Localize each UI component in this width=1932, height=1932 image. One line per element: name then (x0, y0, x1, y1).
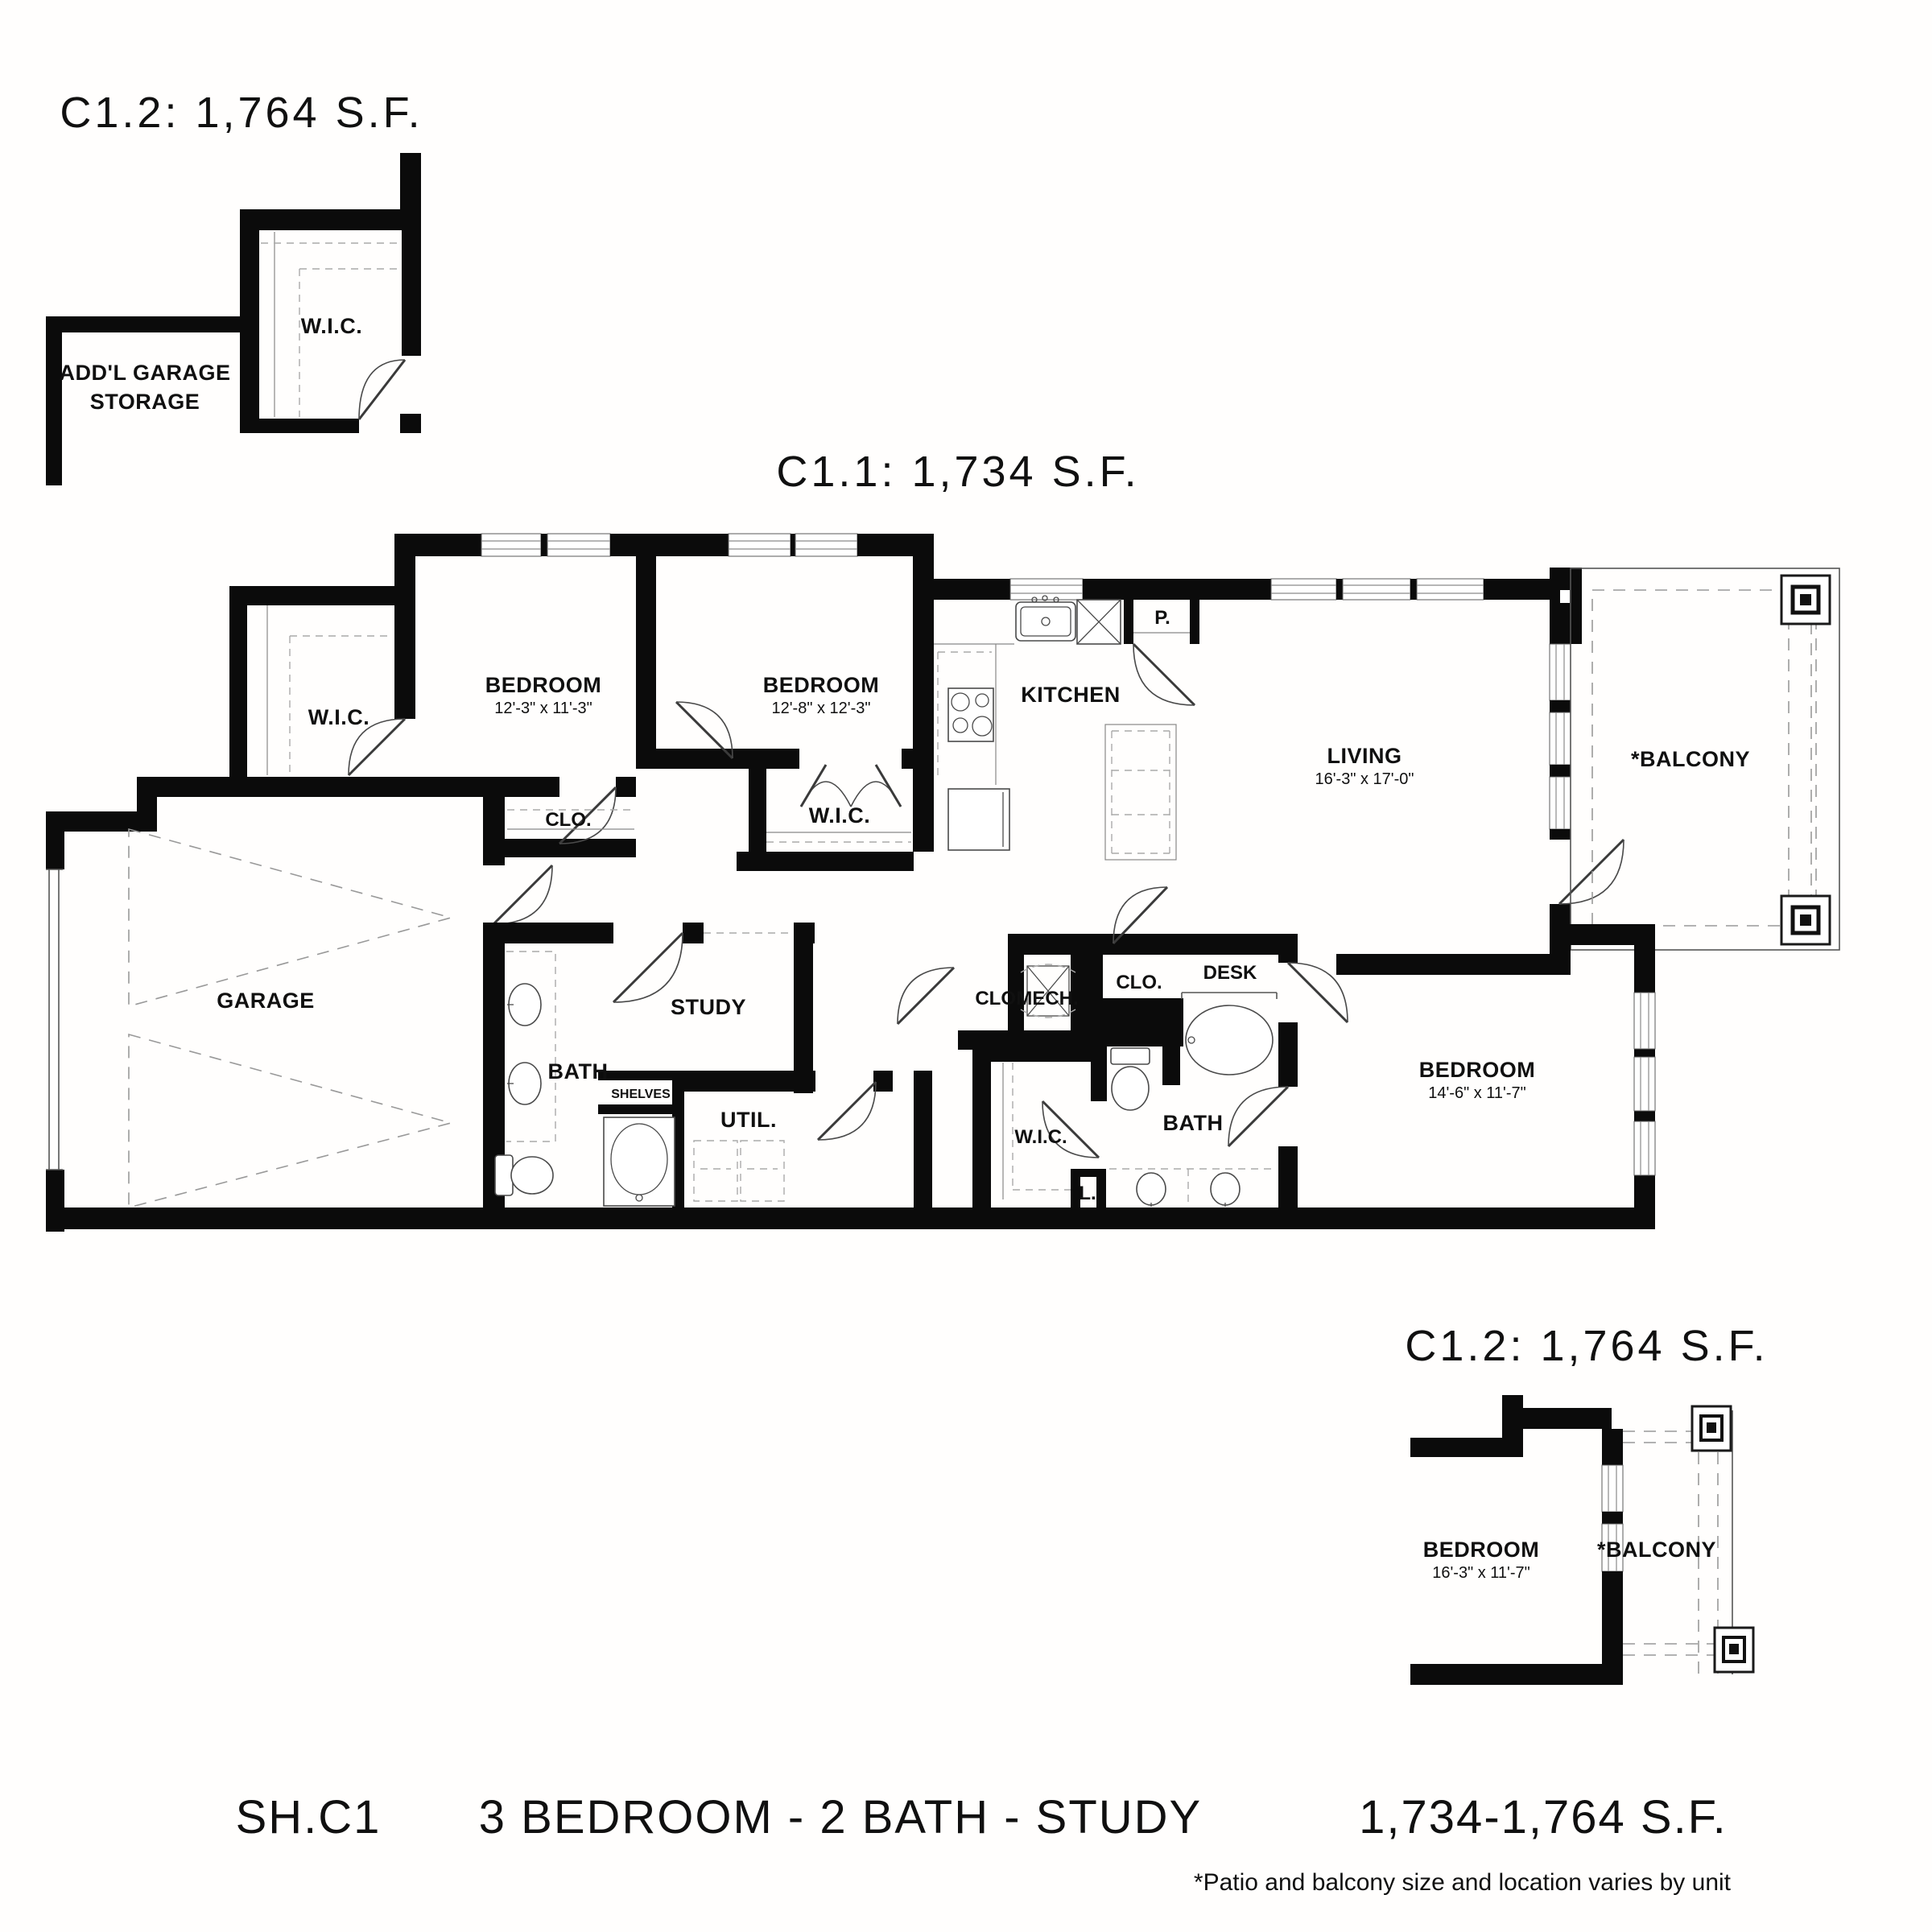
room-dims-bedroom2: 12'-8" x 12'-3" (771, 700, 870, 717)
room-label-bath1: BATH (548, 1059, 609, 1084)
balcony-post-bottom (1781, 896, 1830, 944)
room-dims-bedroom3: 14'-6" x 11'-7" (1428, 1084, 1526, 1102)
footer: SH.C1 3 BEDROOM - 2 BATH - STUDY 1,734-1… (236, 1791, 1732, 1896)
closet2-door-arc (898, 968, 954, 1024)
washer-dryer (694, 1141, 784, 1201)
room-label-mech: MECH. (1016, 988, 1078, 1009)
wic2-double-doors (801, 765, 901, 807)
kitchen-island (1105, 724, 1176, 860)
bath1-door-arc (613, 933, 683, 1002)
room-label-garage: GARAGE (217, 989, 315, 1013)
inset-balcony-post-bottom (1715, 1628, 1753, 1672)
garage-door-swing-triangles (129, 829, 451, 1207)
master-toilet (1111, 1048, 1150, 1110)
wic2-closet-lines (766, 832, 911, 842)
room-label-inset-balcony: *BALCONY (1597, 1538, 1716, 1562)
variant-title-top: C1.2: 1,764 S.F. (60, 89, 423, 137)
master-suite-walls (958, 924, 1655, 1228)
balcony-door-arc (1559, 840, 1624, 904)
exterior-wall-north-kitchen-living (913, 534, 1582, 852)
label-addl-garage-storage: ADD'L GARAGE (60, 361, 231, 385)
room-label-closet2: CLO. (975, 988, 1021, 1009)
room-label-utility: UTIL. (720, 1108, 777, 1132)
bath1-tub (604, 1117, 675, 1206)
inset-balcony-post-top (1692, 1406, 1731, 1451)
room-dims-bedroom1: 12'-3" x 11'-3" (494, 700, 592, 717)
room-label-inset-bedroom: BEDROOM (1423, 1538, 1540, 1562)
room-label-closet3: CLO. (1116, 972, 1162, 993)
wall-bed1-wic (394, 556, 415, 719)
room-label-bedroom3: BEDROOM (1419, 1058, 1536, 1082)
variant-title-bottom: C1.2: 1,764 S.F. (1405, 1322, 1768, 1370)
floorplan-drawing: C1.2: 1,764 S.F. ADD'L GARAGE STORAGE W.… (0, 0, 1932, 1932)
plan-description: 3 BEDROOM - 2 BATH - STUDY (479, 1791, 1202, 1843)
exterior-wall-north-bedrooms (394, 534, 934, 556)
inset-bottom-right: C1.2: 1,764 S.F. (1405, 1322, 1768, 1685)
wic-door-arc (359, 360, 405, 419)
floorplan-sheet: C1.2: 1,764 S.F. ADD'L GARAGE STORAGE W.… (0, 0, 1932, 1932)
label-inset-wic: W.I.C. (301, 314, 363, 338)
living-east-wall (1550, 644, 1571, 924)
room-label-balcony: *BALCONY (1631, 747, 1750, 771)
room-label-wic1: W.I.C. (308, 705, 370, 729)
balcony-disclaimer-note: *Patio and balcony size and location var… (1194, 1869, 1732, 1896)
main-plan: C1.1: 1,734 S.F. (46, 448, 1839, 1232)
room-label-bath2: BATH (1163, 1111, 1224, 1135)
range-burners (948, 688, 993, 741)
room-dims-living: 16'-3" x 17'-0" (1315, 770, 1414, 788)
kitchen-corner-cabinet (1077, 600, 1121, 644)
bath1-vanity (506, 952, 555, 1141)
room-label-desk: DESK (1203, 962, 1257, 984)
room-dims-inset-bedroom: 16'-3" x 11'-7" (1432, 1564, 1530, 1582)
room-label-wic2: W.I.C. (809, 803, 871, 828)
balcony-post-top (1781, 576, 1830, 624)
room-label-pantry: P. (1154, 607, 1170, 629)
inset-top-walls (46, 153, 421, 485)
kitchen-sink (1016, 596, 1075, 641)
inset-top-left: C1.2: 1,764 S.F. ADD'L GARAGE STORAGE W.… (46, 89, 423, 485)
room-label-linen: L. (1079, 1183, 1096, 1204)
refrigerator (948, 789, 1009, 850)
room-label-bedroom1: BEDROOM (485, 673, 602, 697)
master-vanity (1109, 1169, 1277, 1207)
bath1-toilet (495, 1155, 553, 1195)
master-bath-door-arc (1228, 1087, 1288, 1146)
room-label-closet1: CLO. (545, 809, 591, 831)
desk-counter (1182, 993, 1277, 999)
room-label-bedroom2: BEDROOM (763, 673, 880, 697)
room-label-kitchen: KITCHEN (1021, 683, 1121, 707)
plan-code: SH.C1 (236, 1791, 382, 1843)
room-label-shelves: SHELVES (611, 1088, 671, 1101)
util-door-arc (818, 1082, 876, 1140)
master-tub (1186, 1005, 1273, 1075)
garage-door (46, 869, 63, 1170)
room-label-living: LIVING (1327, 744, 1402, 768)
pantry-door-arc (1133, 644, 1195, 705)
room-label-study: STUDY (671, 995, 746, 1019)
garage-entry-door-arc (493, 865, 552, 924)
label-addl-garage-storage-2: STORAGE (90, 390, 200, 414)
room-label-wic3: W.I.C. (1014, 1126, 1067, 1148)
plan-size-range: 1,734-1,764 S.F. (1359, 1791, 1728, 1843)
variant-title-main: C1.1: 1,734 S.F. (776, 448, 1139, 496)
